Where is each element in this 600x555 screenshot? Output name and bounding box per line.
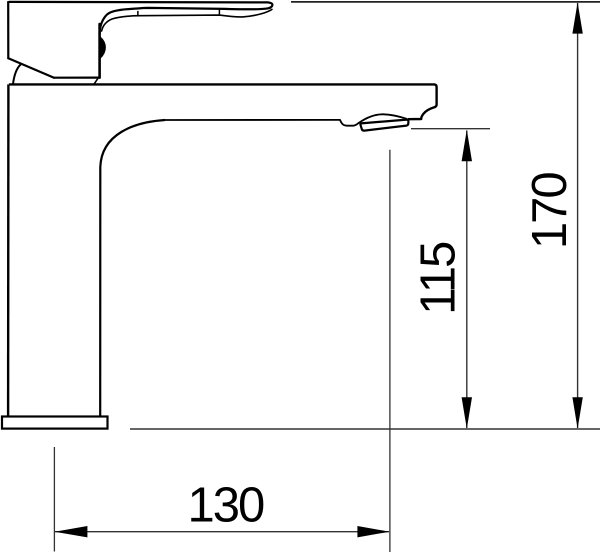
svg-text:115: 115 [412,242,466,315]
svg-text:170: 170 [523,173,577,250]
svg-text:130: 130 [188,478,265,532]
